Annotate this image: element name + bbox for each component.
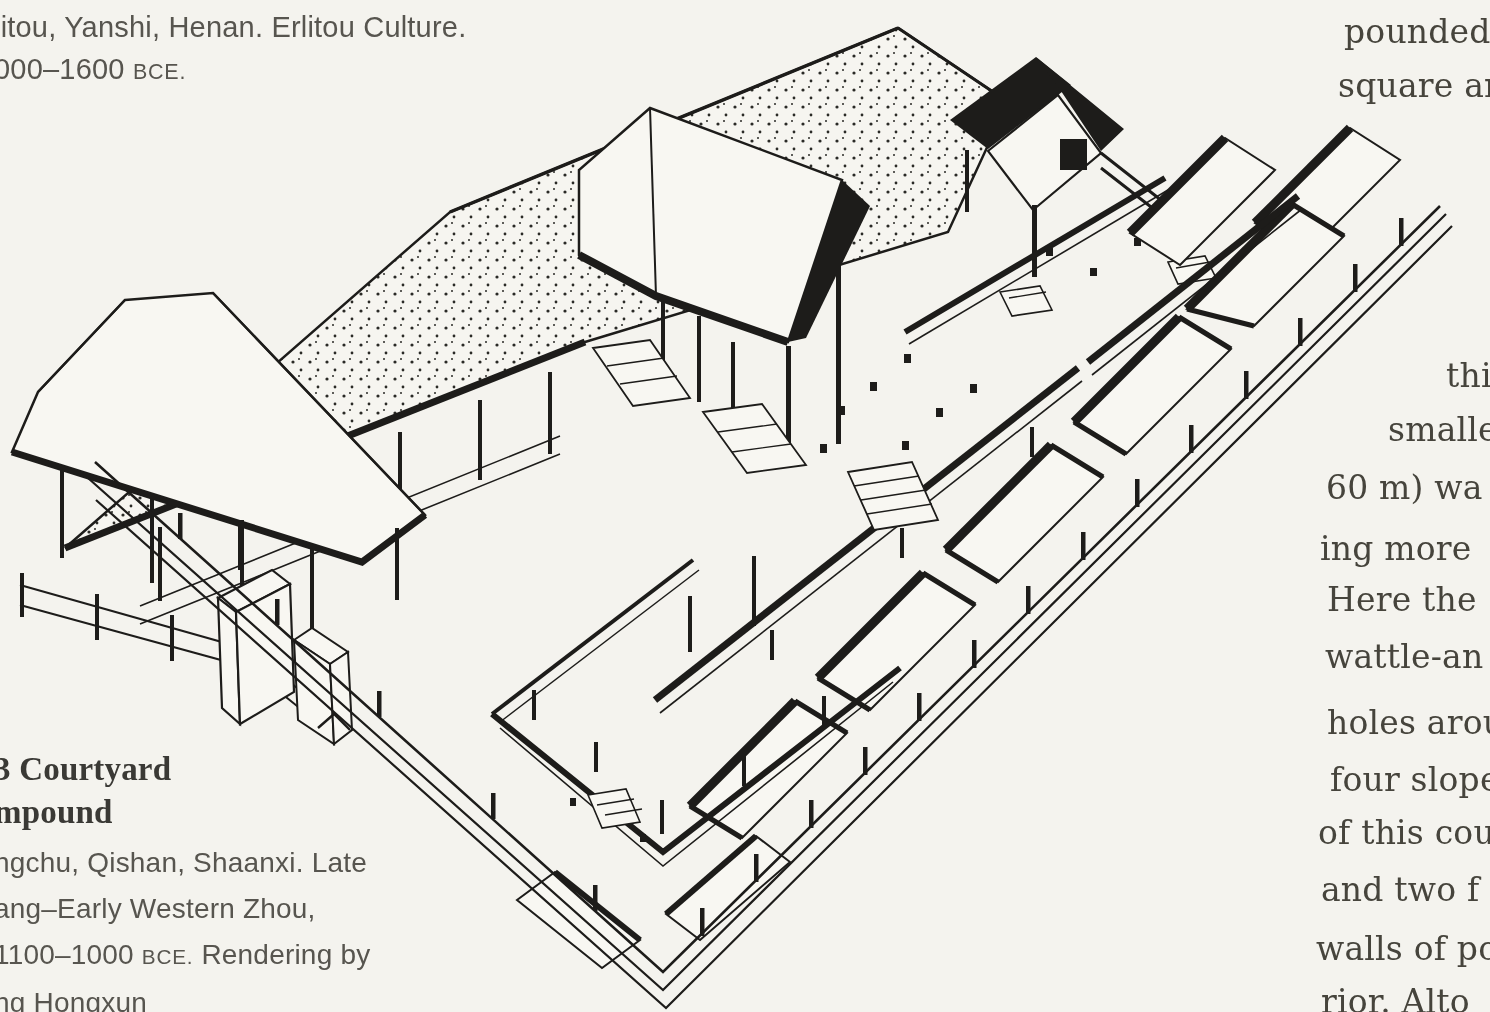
column-base-dots: [820, 354, 977, 453]
caption-line: litou, Yanshi, Henan. Erlitou Culture.: [0, 6, 514, 48]
screen-wall-block: [218, 570, 352, 744]
era-smallcaps: BCE.: [133, 60, 186, 84]
era-smallcaps: BCE.: [142, 945, 194, 968]
gate-door: [1060, 139, 1087, 170]
caption-line: ng Hongxun: [0, 980, 464, 1012]
caption-line: 1100–1000 BCE. Rendering by: [0, 932, 464, 980]
caption-line: ngchu, Qishan, Shaanxi. Late: [0, 840, 464, 886]
figure-caption-courtyard: 3 Courtyard mpound ngchu, Qishan, Shaanx…: [0, 748, 464, 1012]
caption-line: 000–1600 BCE.: [0, 48, 514, 93]
caption-heading: 3 Courtyard mpound: [0, 748, 464, 834]
scanned-book-page: litou, Yanshi, Henan. Erlitou Culture. 0…: [0, 0, 1490, 1012]
caption-line: ang–Early Western Zhou,: [0, 886, 464, 932]
figure-caption-erlitou: litou, Yanshi, Henan. Erlitou Culture. 0…: [0, 6, 514, 93]
